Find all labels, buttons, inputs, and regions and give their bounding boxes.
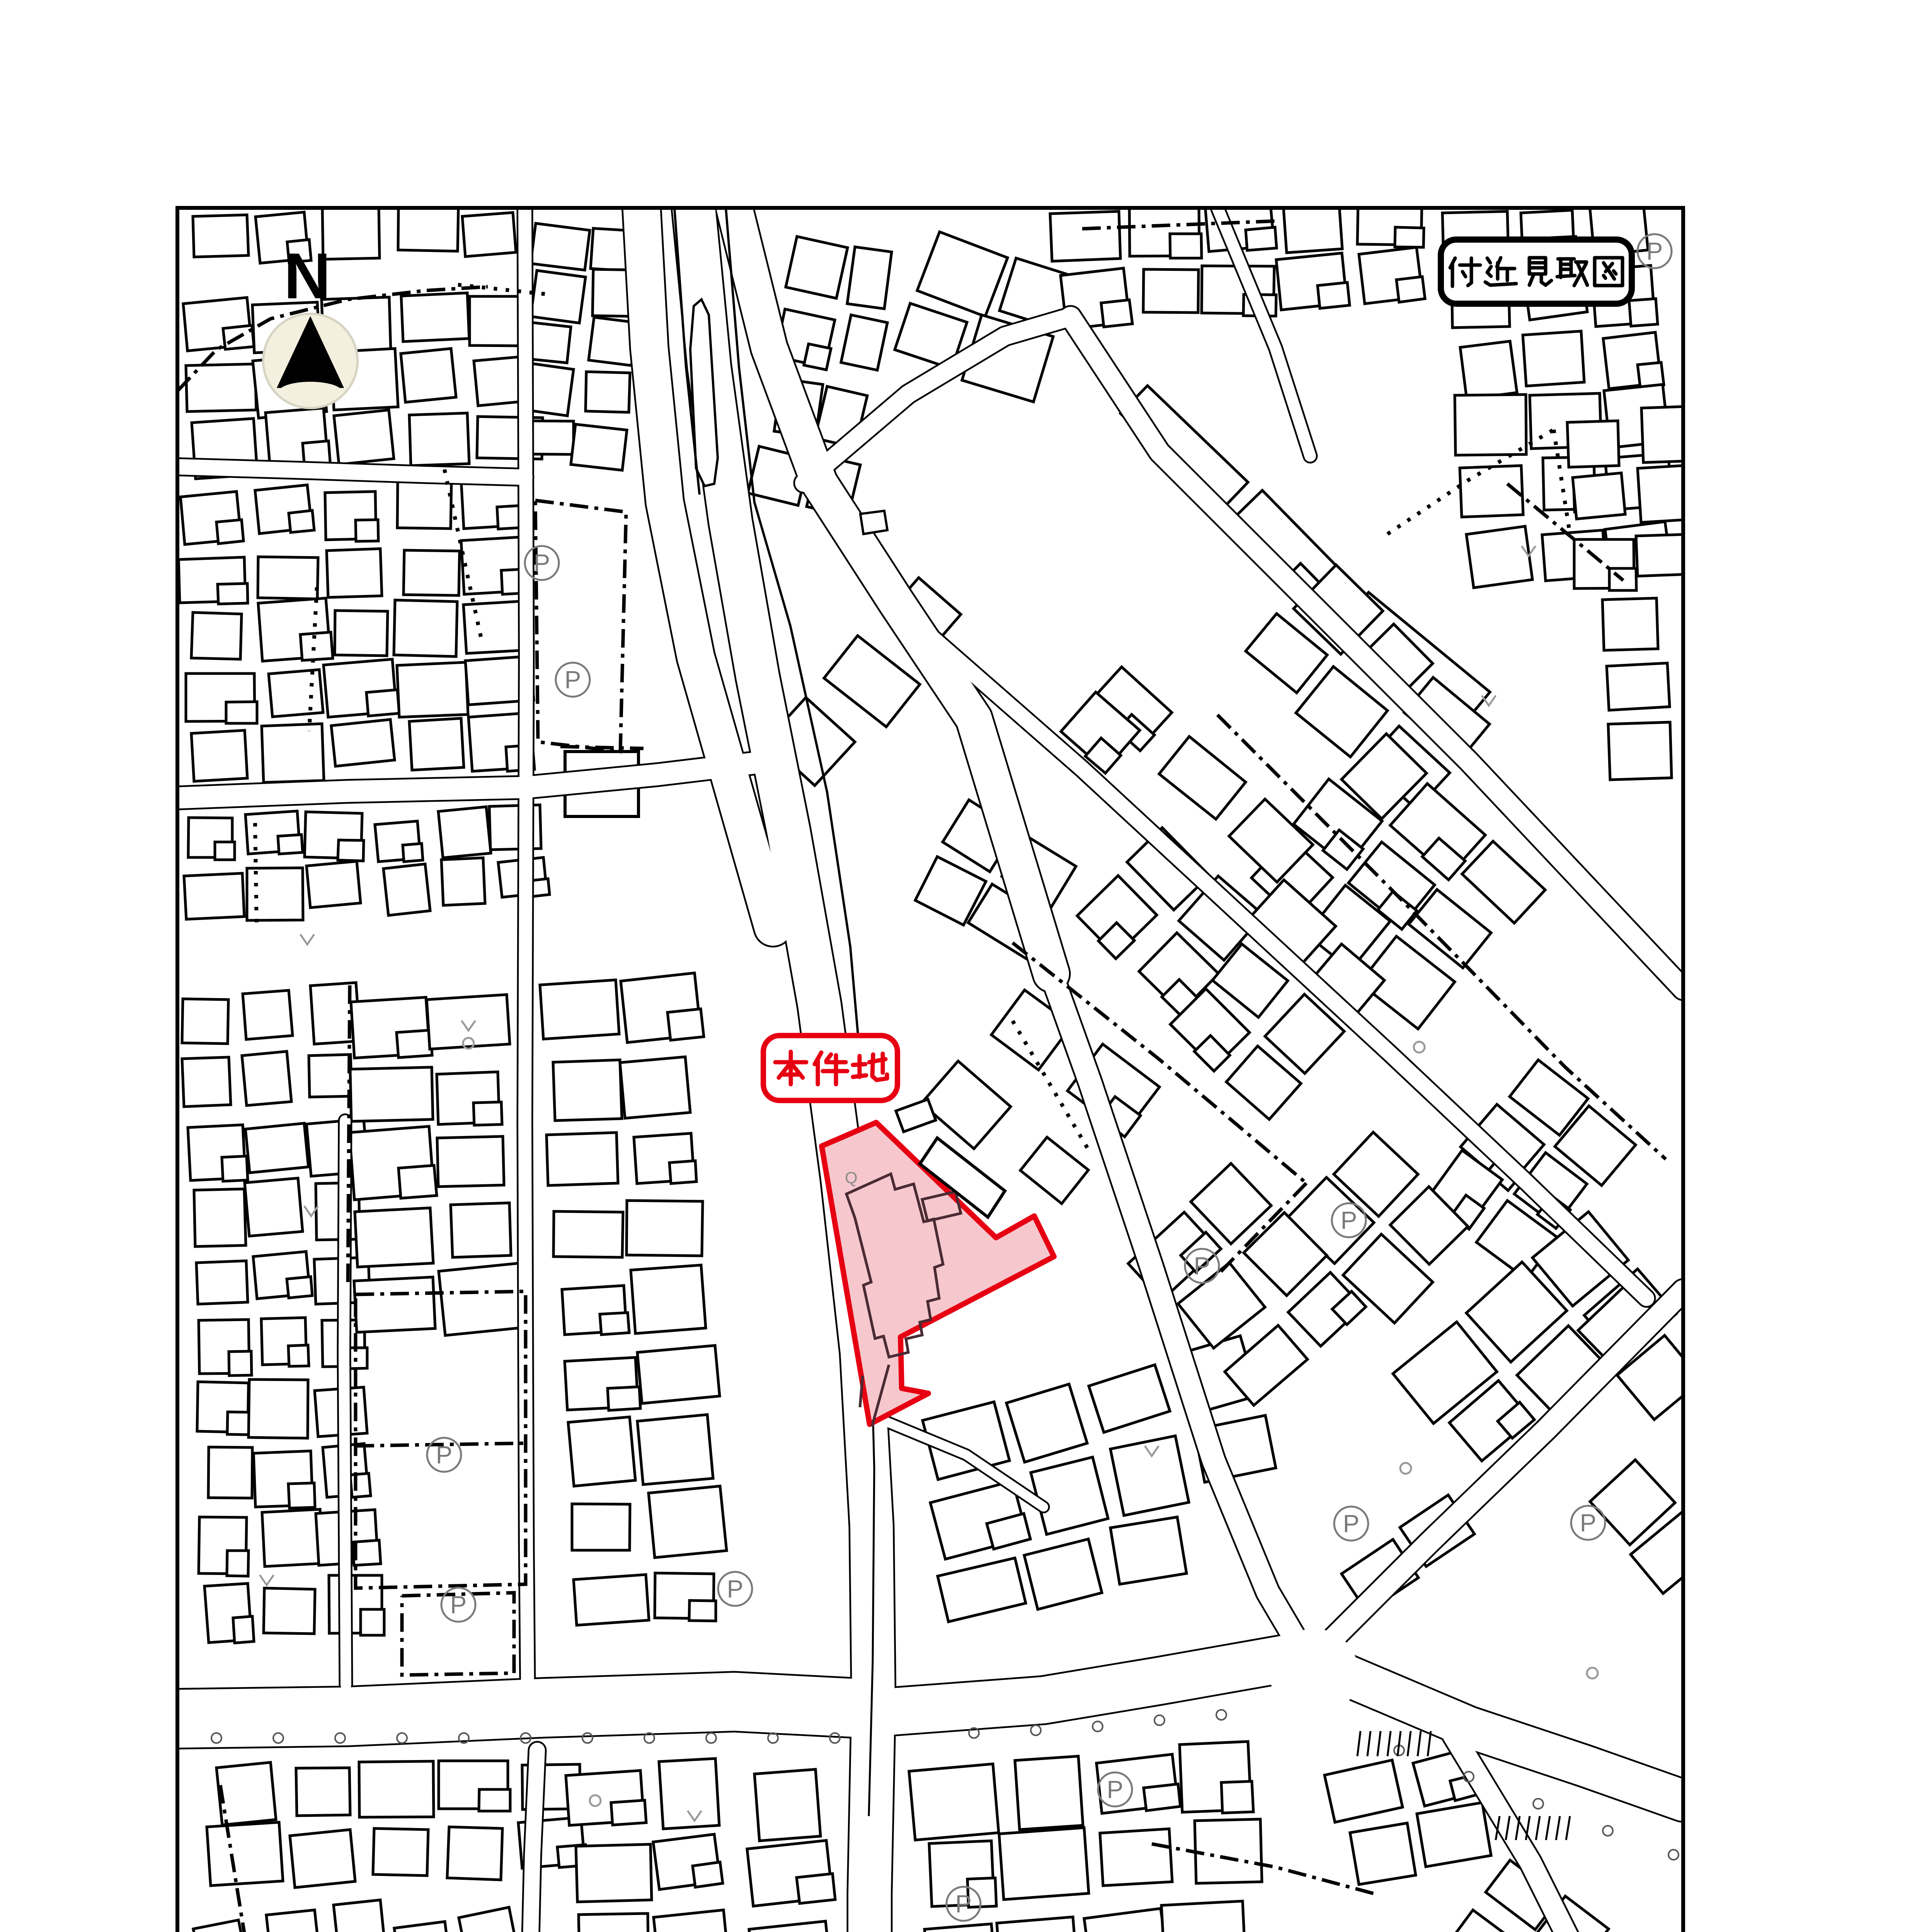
svg-text:P: P — [1646, 237, 1663, 265]
svg-text:Q: Q — [845, 1168, 858, 1187]
svg-text:P: P — [436, 1441, 453, 1469]
svg-text:P: P — [1341, 1206, 1357, 1234]
svg-text:P: P — [534, 549, 550, 577]
svg-text:P: P — [565, 666, 581, 694]
svg-text:N: N — [284, 240, 330, 312]
svg-text:P: P — [1194, 1252, 1210, 1280]
svg-text:P: P — [1343, 1510, 1360, 1537]
svg-text:P: P — [450, 1591, 467, 1619]
svg-text:P: P — [1107, 1776, 1124, 1803]
svg-text:P: P — [955, 1890, 972, 1918]
svg-text:P: P — [1580, 1509, 1597, 1537]
svg-text:P: P — [727, 1575, 744, 1603]
